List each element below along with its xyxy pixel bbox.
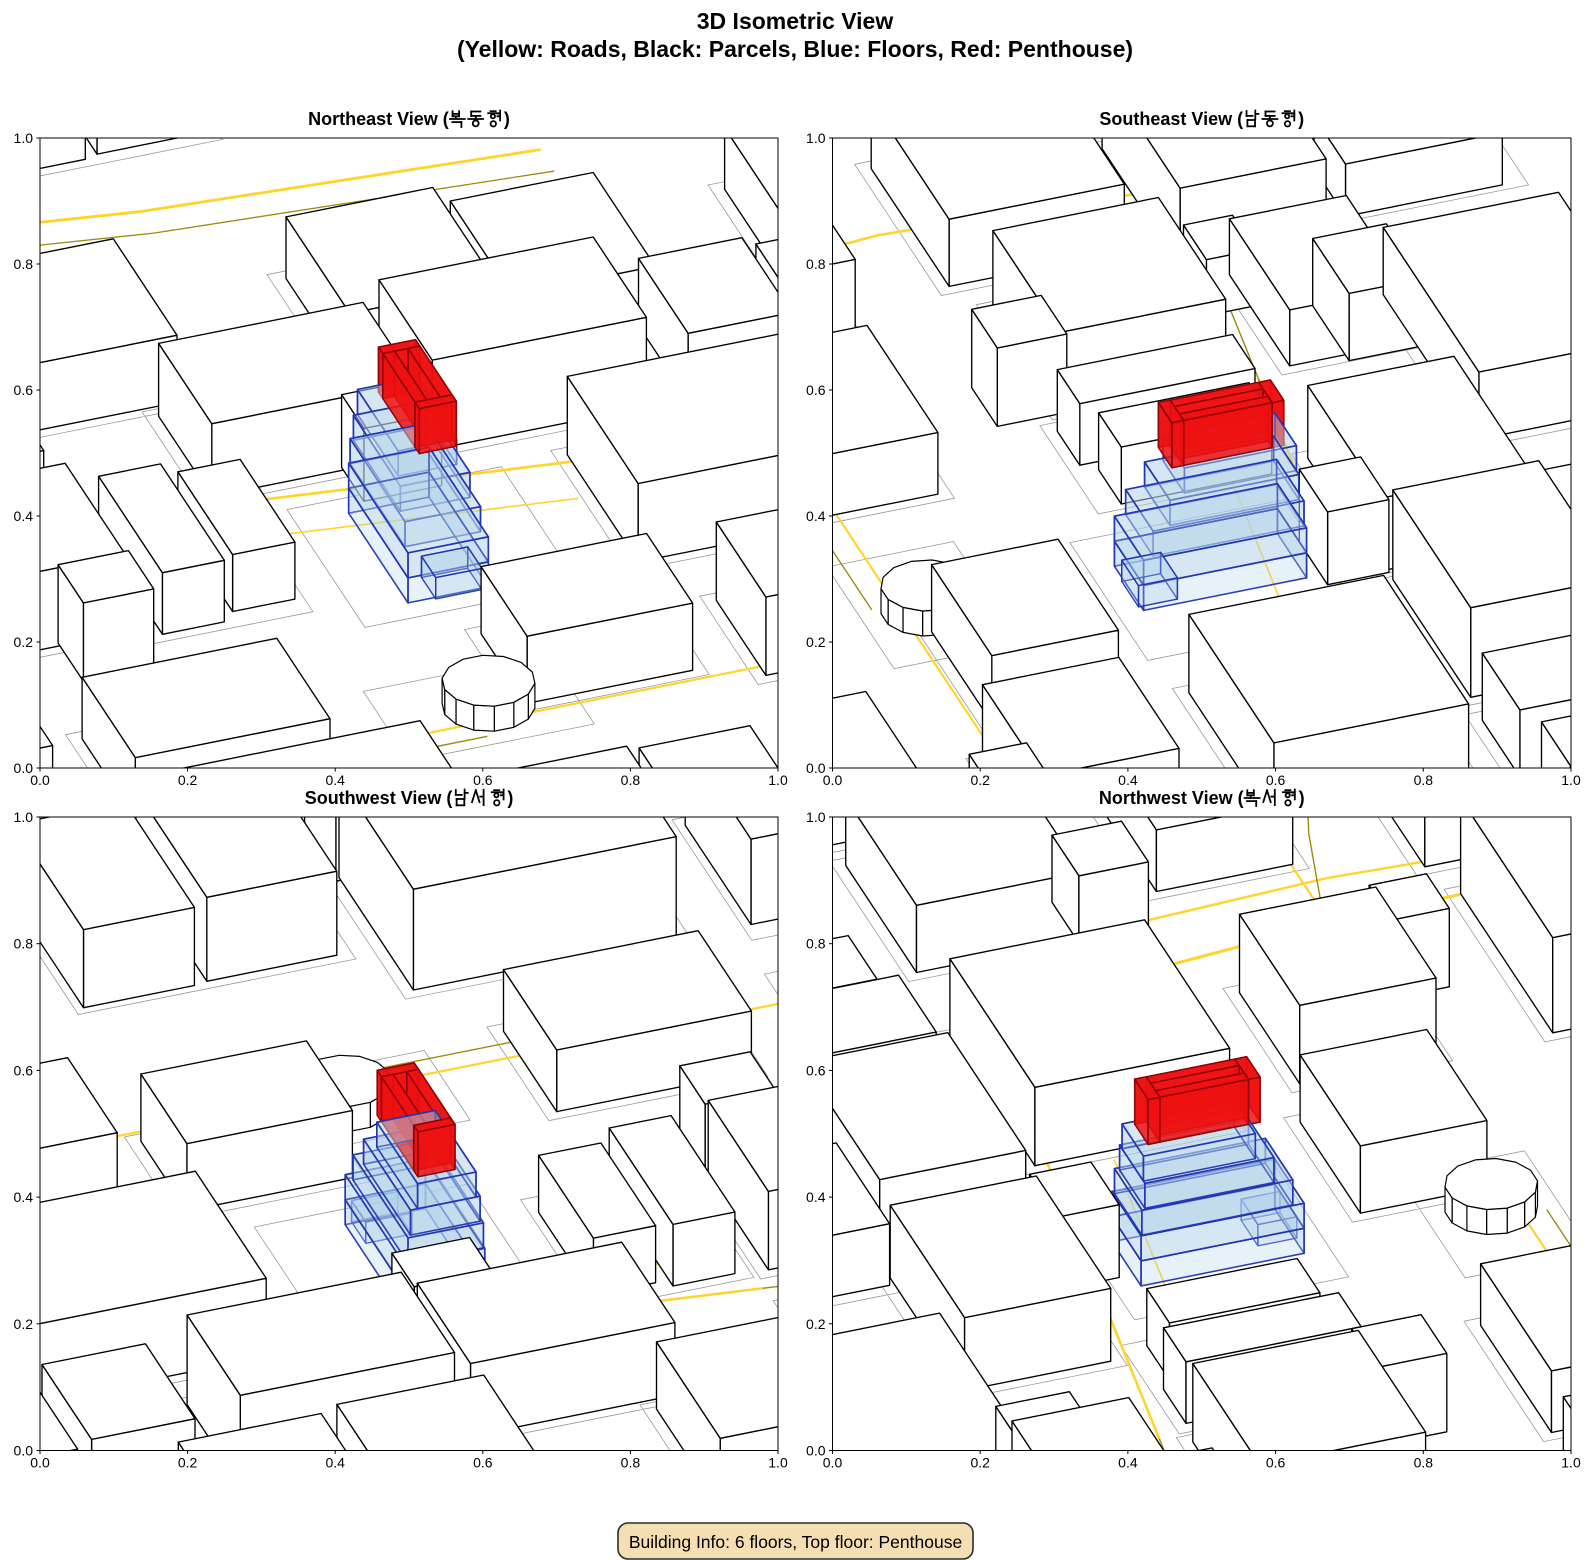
svg-text:0.4: 0.4 bbox=[14, 1189, 34, 1205]
svg-text:(Yellow: Roads, Black: Parcels: (Yellow: Roads, Black: Parcels, Blue: Fl… bbox=[457, 36, 1133, 62]
svg-text:Northwest View (: Northwest View ( bbox=[1099, 788, 1244, 808]
svg-text:Northeast View (: Northeast View ( bbox=[308, 109, 449, 129]
svg-text:0.0: 0.0 bbox=[14, 1443, 34, 1459]
svg-text:0.2: 0.2 bbox=[806, 1316, 826, 1332]
svg-text:1.0: 1.0 bbox=[768, 772, 788, 788]
svg-text:0.0: 0.0 bbox=[823, 1455, 843, 1471]
svg-text:1.0: 1.0 bbox=[1561, 772, 1581, 788]
svg-text:0.6: 0.6 bbox=[806, 1062, 826, 1078]
svg-text:3D Isometric View: 3D Isometric View bbox=[697, 8, 894, 34]
svg-text:): ) bbox=[1299, 788, 1305, 808]
svg-text:): ) bbox=[504, 109, 510, 129]
svg-text:1.0: 1.0 bbox=[806, 130, 826, 146]
svg-text:0.8: 0.8 bbox=[806, 256, 826, 272]
svg-text:0.2: 0.2 bbox=[14, 634, 34, 650]
svg-text:0.6: 0.6 bbox=[806, 382, 826, 398]
svg-text:Southwest View (: Southwest View ( bbox=[305, 788, 453, 808]
svg-text:0.4: 0.4 bbox=[14, 508, 34, 524]
svg-text:0.0: 0.0 bbox=[30, 772, 50, 788]
svg-text:0.4: 0.4 bbox=[325, 772, 345, 788]
svg-text:0.2: 0.2 bbox=[178, 772, 198, 788]
svg-text:0.8: 0.8 bbox=[1414, 772, 1434, 788]
svg-text:Southeast View (: Southeast View ( bbox=[1099, 109, 1243, 129]
svg-text:0.2: 0.2 bbox=[970, 772, 990, 788]
svg-text:0.6: 0.6 bbox=[1266, 772, 1286, 788]
svg-text:0.8: 0.8 bbox=[621, 772, 641, 788]
svg-text:0.0: 0.0 bbox=[30, 1455, 50, 1471]
svg-text:0.8: 0.8 bbox=[14, 256, 34, 272]
svg-text:0.4: 0.4 bbox=[325, 1455, 345, 1471]
svg-text:0.8: 0.8 bbox=[1414, 1455, 1434, 1471]
svg-text:0.6: 0.6 bbox=[14, 382, 34, 398]
svg-text:): ) bbox=[1298, 109, 1304, 129]
svg-text:0.8: 0.8 bbox=[806, 936, 826, 952]
svg-text:0.0: 0.0 bbox=[823, 772, 843, 788]
svg-text:0.2: 0.2 bbox=[178, 1455, 198, 1471]
svg-text:): ) bbox=[507, 788, 513, 808]
svg-text:0.0: 0.0 bbox=[806, 1443, 826, 1459]
svg-text:0.4: 0.4 bbox=[1118, 1455, 1138, 1471]
svg-text:0.2: 0.2 bbox=[806, 634, 826, 650]
svg-text:1.0: 1.0 bbox=[806, 809, 826, 825]
svg-text:0.8: 0.8 bbox=[14, 936, 34, 952]
svg-text:Building Info: 6 floors, Top f: Building Info: 6 floors, Top floor: Pent… bbox=[629, 1532, 962, 1552]
svg-text:0.4: 0.4 bbox=[806, 508, 826, 524]
svg-text:0.0: 0.0 bbox=[14, 760, 34, 776]
svg-text:0.4: 0.4 bbox=[1118, 772, 1138, 788]
svg-text:1.0: 1.0 bbox=[14, 130, 34, 146]
svg-text:0.0: 0.0 bbox=[806, 760, 826, 776]
svg-text:0.8: 0.8 bbox=[621, 1455, 641, 1471]
svg-text:1.0: 1.0 bbox=[14, 809, 34, 825]
svg-text:0.6: 0.6 bbox=[473, 1455, 493, 1471]
svg-text:1.0: 1.0 bbox=[768, 1455, 788, 1471]
svg-text:0.2: 0.2 bbox=[14, 1316, 34, 1332]
svg-text:1.0: 1.0 bbox=[1561, 1455, 1581, 1471]
svg-text:0.4: 0.4 bbox=[806, 1189, 826, 1205]
svg-text:0.6: 0.6 bbox=[1266, 1455, 1286, 1471]
svg-text:0.2: 0.2 bbox=[970, 1455, 990, 1471]
svg-text:0.6: 0.6 bbox=[14, 1062, 34, 1078]
svg-text:0.6: 0.6 bbox=[473, 772, 493, 788]
